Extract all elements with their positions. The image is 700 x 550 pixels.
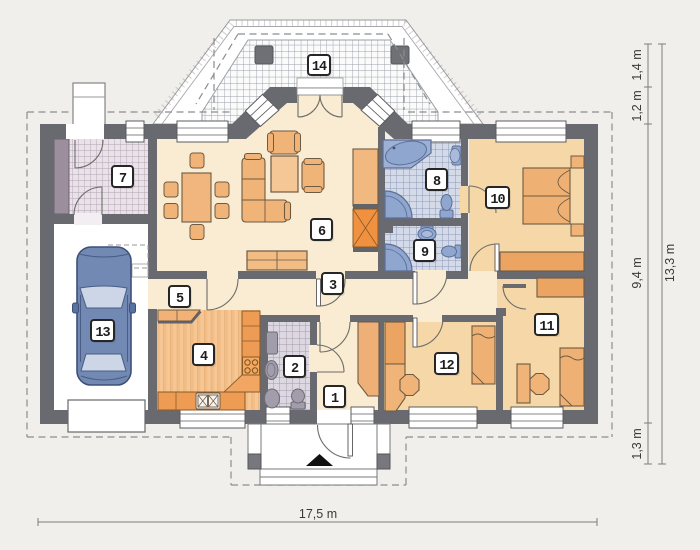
svg-text:5: 5 [176,292,184,307]
svg-text:2: 2 [291,362,299,377]
svg-text:4: 4 [200,350,208,365]
svg-text:14: 14 [312,60,327,75]
svg-text:1,3 m: 1,3 m [630,428,644,459]
svg-text:12: 12 [439,359,454,374]
svg-text:8: 8 [433,175,441,190]
svg-text:9: 9 [421,246,429,261]
svg-text:1: 1 [331,392,339,407]
svg-text:9,4 m: 9,4 m [630,257,644,288]
svg-text:13: 13 [95,326,110,341]
svg-text:1,2 m: 1,2 m [630,90,644,121]
svg-text:6: 6 [318,225,326,240]
svg-text:10: 10 [490,193,505,208]
svg-text:7: 7 [119,172,127,187]
svg-text:3: 3 [329,279,337,294]
svg-text:17,5 m: 17,5 m [299,507,337,521]
svg-text:11: 11 [539,320,554,335]
svg-text:13,3 m: 13,3 m [663,244,677,282]
svg-text:1,4 m: 1,4 m [630,49,644,80]
